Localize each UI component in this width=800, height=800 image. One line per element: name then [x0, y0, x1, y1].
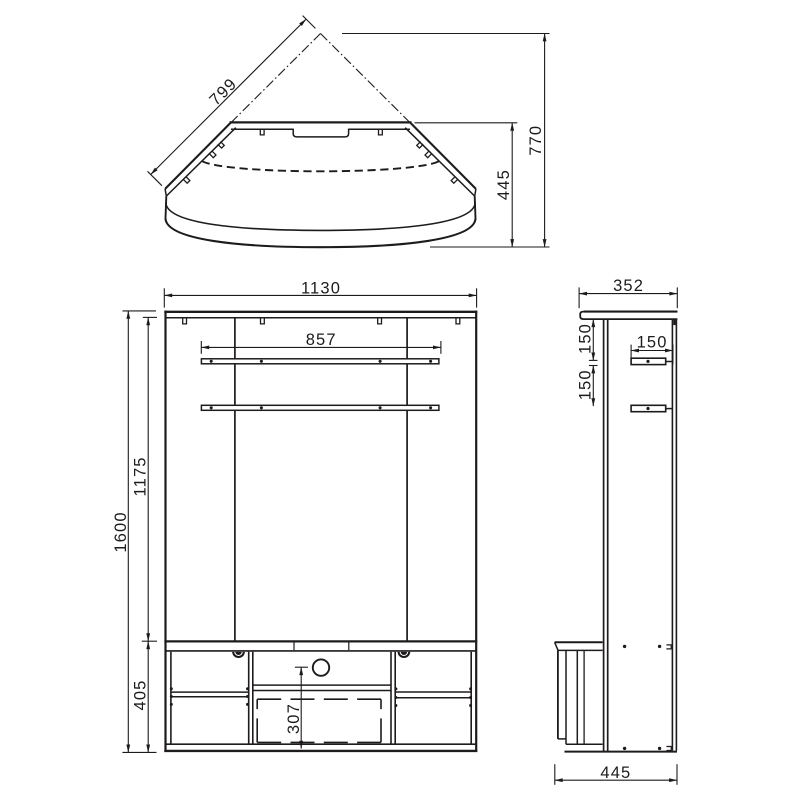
svg-text:1130: 1130 — [301, 279, 341, 297]
svg-text:1600: 1600 — [112, 511, 130, 552]
svg-text:150: 150 — [637, 334, 668, 352]
svg-text:307: 307 — [285, 703, 303, 734]
svg-text:857: 857 — [306, 331, 337, 349]
svg-text:150: 150 — [577, 323, 595, 354]
svg-text:770: 770 — [527, 125, 545, 156]
svg-text:445: 445 — [600, 764, 631, 782]
svg-text:445: 445 — [495, 169, 513, 200]
svg-text:405: 405 — [132, 680, 150, 711]
svg-text:352: 352 — [613, 277, 644, 295]
svg-text:799: 799 — [206, 75, 241, 110]
svg-text:150: 150 — [577, 369, 595, 400]
svg-text:1175: 1175 — [132, 456, 150, 496]
